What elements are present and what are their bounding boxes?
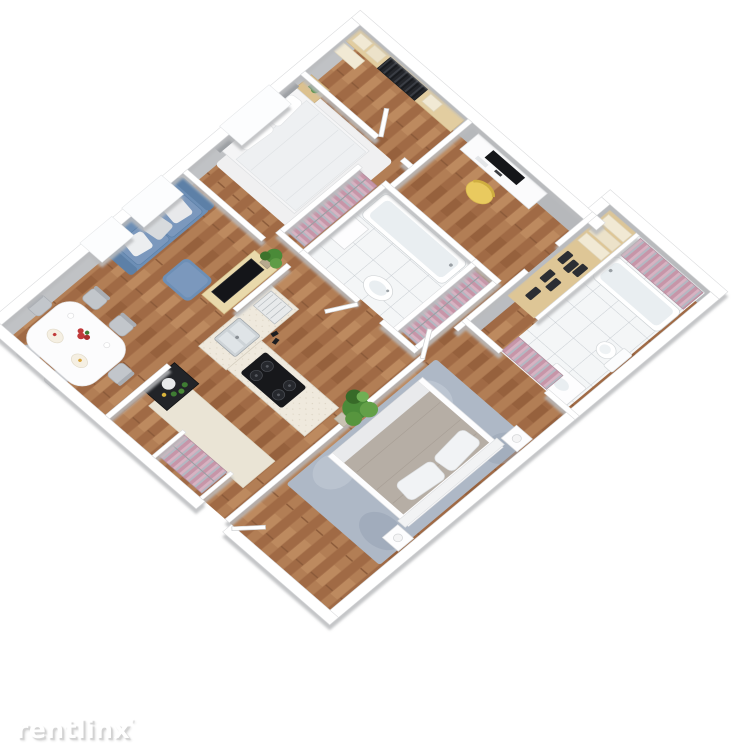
watermark-text: rentlinx bbox=[16, 715, 130, 744]
floors-layer bbox=[1, 7, 719, 618]
floor-plan-screenshot: rentlinxʹ bbox=[0, 0, 750, 750]
watermark-mark: ʹ bbox=[130, 718, 134, 732]
rentlinx-watermark: rentlinxʹ bbox=[16, 715, 134, 744]
floor-plan-render bbox=[0, 0, 750, 750]
